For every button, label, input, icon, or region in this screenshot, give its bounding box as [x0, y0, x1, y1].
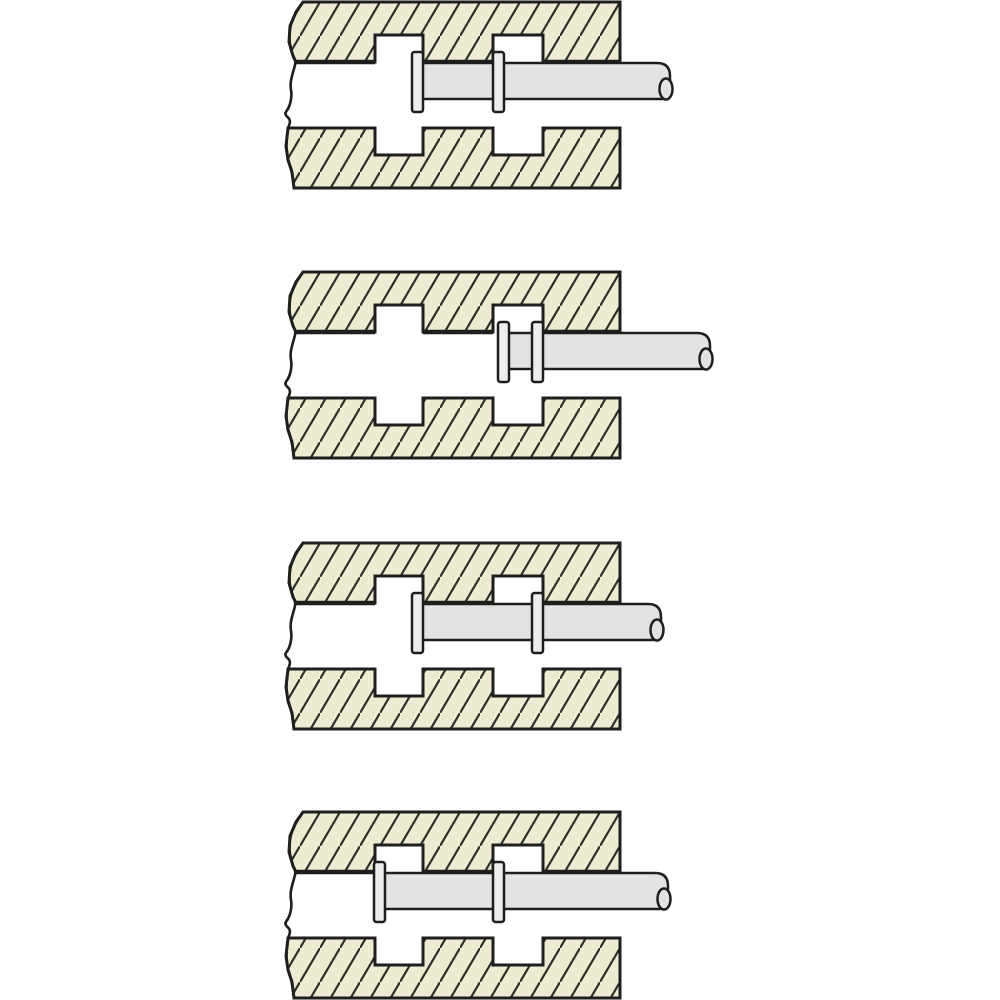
assembly-panel-position-4 — [285, 812, 670, 998]
lower-plate — [286, 398, 620, 458]
assembly-panel-position-1 — [285, 2, 672, 188]
pin-collar — [498, 322, 509, 382]
pin-collar — [374, 862, 385, 922]
upper-plate — [289, 272, 620, 332]
pin-shaft — [376, 873, 668, 909]
upper-plate — [289, 812, 620, 872]
pin-tip — [700, 349, 713, 370]
pin-shaft — [414, 63, 670, 99]
lower-plate — [286, 938, 620, 998]
pin-collar — [493, 52, 504, 112]
pin-tip — [660, 79, 673, 100]
pin-tip — [651, 620, 664, 641]
pin-collar — [532, 593, 543, 653]
lower-plate — [286, 128, 620, 188]
pin-collar — [532, 322, 543, 382]
assembly-panel-position-2 — [285, 272, 712, 458]
pin-collar — [493, 862, 504, 922]
pin-collar — [412, 593, 423, 653]
pin-tip — [658, 889, 671, 910]
lower-plate — [286, 669, 620, 729]
illustration-page — [0, 0, 1000, 1000]
upper-plate — [289, 2, 620, 62]
assembly-panel-position-3 — [285, 543, 663, 729]
diagram-svg — [0, 0, 1000, 1000]
upper-plate — [289, 543, 620, 603]
pin-collar — [412, 52, 423, 112]
